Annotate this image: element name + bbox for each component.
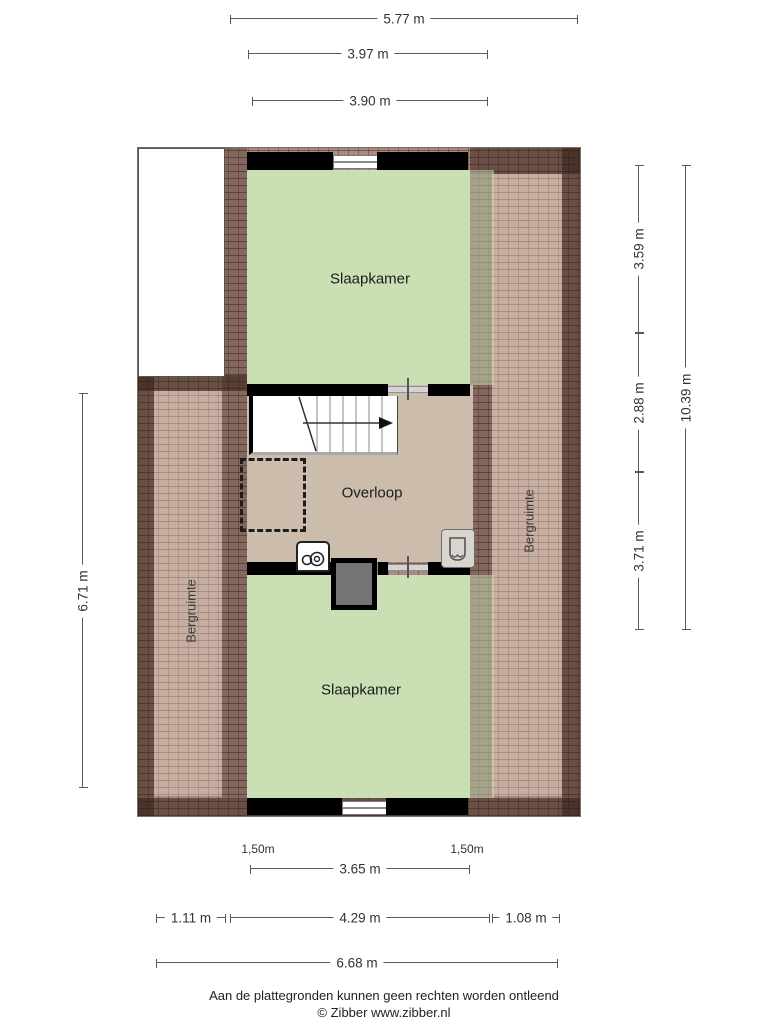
dimension-bottom-left-width: 1.11 m bbox=[156, 917, 226, 918]
door-swing-mark bbox=[407, 378, 409, 400]
storage-floor-right bbox=[492, 174, 562, 796]
dimension-label: 3.59 m bbox=[632, 222, 647, 275]
building-cutout bbox=[138, 148, 225, 377]
dimension-total-width-top: 5.77 m bbox=[230, 18, 578, 19]
dimension-label: 4.29 m bbox=[333, 911, 386, 926]
door-swing-mark bbox=[407, 556, 409, 578]
washing-machine-icon bbox=[296, 541, 330, 572]
wall-segment bbox=[428, 384, 470, 396]
headroom-label-right: 1,50m bbox=[450, 842, 483, 856]
roof-edge-right bbox=[562, 148, 580, 816]
dimension-label: 1.08 m bbox=[499, 911, 552, 926]
headroom-label-left: 1,50m bbox=[241, 842, 274, 856]
dimension-label: 10.39 m bbox=[679, 367, 694, 428]
wall-segment bbox=[378, 562, 388, 575]
chimney-block bbox=[331, 558, 377, 610]
dimension-label: 6.71 m bbox=[76, 564, 91, 617]
room-label-storage-left: Bergruimte bbox=[184, 579, 199, 643]
footer-credit: © Zibber www.zibber.nl bbox=[0, 1005, 768, 1020]
dimension-label: 2.88 m bbox=[632, 376, 647, 429]
dimension-bottom-center-width: 4.29 m bbox=[230, 917, 490, 918]
room-label-storage-right: Bergruimte bbox=[522, 489, 537, 553]
wall-segment bbox=[247, 384, 388, 396]
wall-segment bbox=[386, 798, 468, 815]
dimension-landing-depth: 2.88 m bbox=[638, 333, 639, 472]
dimension-label: 6.68 m bbox=[330, 956, 383, 971]
room-label-bedroom-bottom: Slaapkamer bbox=[321, 682, 401, 699]
dimension-total-width-bottom: 6.68 m bbox=[156, 962, 558, 963]
dimension-label: 3.71 m bbox=[632, 524, 647, 577]
floorplan-canvas: Slaapkamer Overloop Slaapkamer Bergruimt… bbox=[0, 0, 768, 1024]
dimension-label: 3.90 m bbox=[343, 94, 396, 109]
room-label-bedroom-top: Slaapkamer bbox=[330, 271, 410, 288]
dimension-bedroom-top-width-a: 3.97 m bbox=[248, 53, 488, 54]
armchair-icon bbox=[441, 529, 475, 568]
dimension-label: 1.11 m bbox=[165, 911, 217, 926]
wall-segment bbox=[377, 152, 468, 170]
dimension-left-height: 6.71 m bbox=[82, 393, 83, 788]
room-bedroom-top-lowroof bbox=[470, 170, 494, 385]
footer-disclaimer: Aan de plattegronden kunnen geen rechten… bbox=[0, 988, 768, 1003]
dashed-roof-window-outline bbox=[240, 458, 306, 532]
stairs bbox=[249, 396, 398, 455]
room-bedroom-bottom-lowroof bbox=[470, 575, 494, 798]
dimension-label: 5.77 m bbox=[377, 12, 430, 27]
dimension-label: 3.97 m bbox=[341, 47, 394, 62]
stairs-direction-arrow-icon bbox=[379, 417, 393, 429]
window-bottom bbox=[342, 801, 388, 815]
dimension-label: 3.65 m bbox=[333, 862, 386, 877]
dimension-bottom-right-width: 1.08 m bbox=[492, 917, 560, 918]
window-top bbox=[333, 155, 379, 169]
dimension-bedroom-bottom-width: 3.65 m bbox=[250, 868, 470, 869]
dimension-bedroom-top-depth: 3.59 m bbox=[638, 165, 639, 333]
room-label-landing: Overloop bbox=[342, 485, 403, 502]
wall-segment bbox=[247, 152, 333, 170]
dimension-total-depth: 10.39 m bbox=[685, 165, 686, 630]
roof-edge-left bbox=[138, 375, 154, 816]
dimension-bedroom-bottom-depth: 3.71 m bbox=[638, 472, 639, 630]
stairs-treads-and-arrow bbox=[253, 396, 397, 452]
wall-segment bbox=[247, 798, 342, 815]
dimension-bedroom-top-width-b: 3.90 m bbox=[252, 100, 488, 101]
